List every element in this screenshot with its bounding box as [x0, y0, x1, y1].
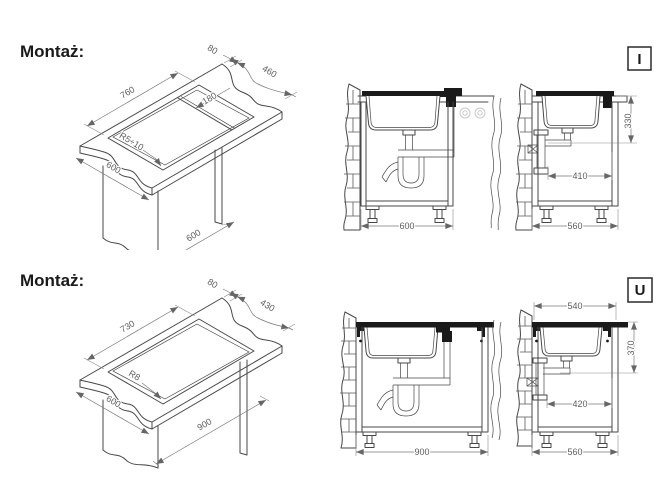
stone-countertop: [532, 322, 628, 328]
iso-cutout-view-inset: 760 80 460 180 R5÷10 600 600: [76, 43, 297, 250]
overflow-pipe: [603, 96, 612, 108]
mount-type-marker-undermount: U: [628, 278, 652, 302]
dim-corner-radius: R8: [127, 368, 142, 383]
dim-drainer-width: 180: [200, 90, 218, 106]
dim-base-width-iso: 900: [195, 416, 213, 432]
dim-mount-height: 330: [623, 113, 633, 128]
side-section-inset: 330 410 560: [516, 84, 637, 231]
dim-cutout-width: 460: [261, 63, 279, 79]
dim-worktop-depth: 600: [105, 159, 123, 175]
dim-base-depth: 560: [567, 447, 582, 457]
dim-worktop-depth: 600: [105, 393, 123, 409]
mount-type-letter: U: [635, 282, 646, 299]
row2-drawing: 730 80 430 R8 600 900: [0, 250, 670, 500]
dim-cutout-width: 430: [259, 297, 277, 313]
dim-drain-offset: 410: [572, 171, 587, 181]
wall-drain: [528, 128, 573, 174]
mount-type-letter: I: [637, 51, 641, 68]
tap-hole-marks: [460, 108, 485, 118]
brick-wall: [516, 84, 532, 230]
cabinet-leg: [363, 432, 481, 448]
dim-top-width: 540: [567, 301, 582, 311]
front-section-undermount: 900: [340, 312, 502, 457]
dim-front-gap: 80: [206, 277, 220, 291]
dim-drain-offset: 420: [572, 399, 587, 409]
brick-wall: [516, 310, 532, 448]
dim-mount-height: 370: [626, 340, 636, 355]
sink-mounting-diagram: Montaż: Montaż:: [0, 0, 670, 500]
dim-base-depth: 560: [567, 221, 582, 231]
dim-base-width-iso: 600: [184, 227, 202, 243]
row1-drawing: 760 80 460 180 R5÷10 600 600: [0, 0, 670, 250]
wall-drain: [527, 356, 572, 400]
side-section-undermount: 540: [516, 301, 638, 457]
cabinet-leg: [540, 432, 609, 448]
iso-cutout-view-undermount: 730 80 430 R8 600 900: [76, 277, 295, 468]
brick-wall: [344, 84, 360, 230]
dim-front-gap: 80: [206, 43, 220, 57]
dim-cutout-length: 760: [118, 84, 136, 100]
dim-base-width-front: 900: [414, 447, 429, 457]
dim-cutout-length: 730: [118, 318, 136, 334]
stone-countertop: [356, 322, 494, 328]
mount-type-marker-inset: I: [628, 47, 651, 70]
brick-wall: [340, 312, 356, 448]
front-section-inset: 600: [344, 84, 502, 231]
dim-base-width-front: 600: [399, 221, 414, 231]
